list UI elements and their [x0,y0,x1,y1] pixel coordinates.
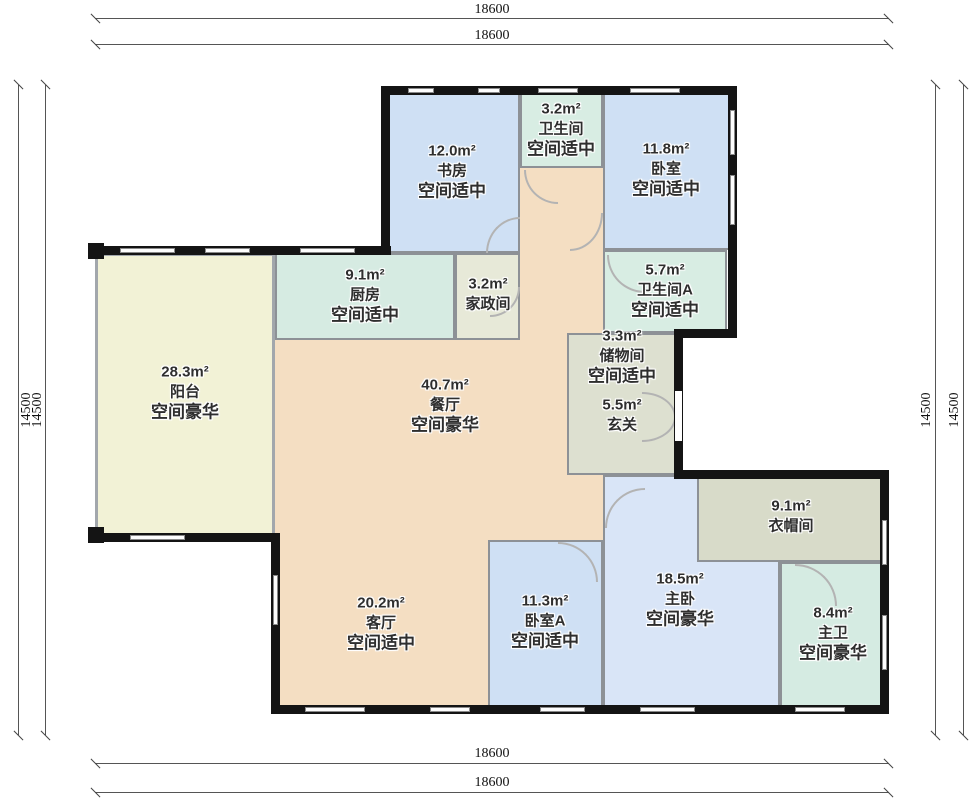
window-segment [300,248,355,253]
room-name: 卧室 [632,159,700,179]
dimension-label-right-1: 14500 [919,393,935,428]
room-name: 阳台 [151,382,219,402]
dimension-line-bottom-2 [95,792,889,793]
label-bedroom: 11.8m² 卧室 空间适中 [632,139,700,200]
room-name: 厨房 [331,285,399,305]
dimension-line-top-2 [95,44,889,45]
window-segment [730,175,735,225]
label-master-bedroom: 18.5m² 主卧 空间豪华 [646,569,714,630]
window-segment [540,707,585,712]
window-segment [305,707,365,712]
window-segment [205,248,250,253]
dimension-line-bottom-1 [95,763,889,764]
dimension-label-bottom-1: 18600 [475,746,510,762]
room-name: 主卧 [646,589,714,609]
label-cloakroom: 9.1m² 衣帽间 [768,497,813,536]
window-segment [430,707,470,712]
room-name: 卫生间 [527,119,595,139]
dimension-label-right-2: 14500 [947,393,963,428]
dimension-line-right-2 [963,85,964,735]
room-grade: 空间适中 [511,630,579,652]
room-grade: 空间豪华 [411,414,479,436]
room-name: 卫生间A [631,280,699,300]
window-segment [882,520,887,565]
room-area: 3.2m² [527,99,595,119]
label-foyer: 5.5m² 玄关 [602,396,641,435]
room-grade: 空间豪华 [151,401,219,423]
room-name: 客厅 [347,613,415,633]
window-segment [795,707,845,712]
dimension-line-right-1 [935,85,936,735]
window-segment [478,88,500,93]
room-grade: 空间适中 [588,365,656,387]
room-area: 20.2m² [347,593,415,613]
window-segment [630,88,680,93]
room-name: 卧室A [511,611,579,631]
dimension-label-top-1: 18600 [475,2,510,18]
corridor-area [520,168,603,340]
label-dining: 40.7m² 餐厅 空间豪华 [411,375,479,436]
room-area: 3.2m² [465,275,510,295]
wall-right-lower [880,470,889,714]
wall-step [674,329,737,338]
label-housekeeping: 3.2m² 家政间 [465,275,510,314]
room-area: 9.1m² [331,265,399,285]
room-area: 28.3m² [151,362,219,382]
dining-area-lower [275,475,603,540]
room-area: 40.7m² [411,375,479,395]
label-storage: 3.3m² 储物间 空间适中 [588,326,656,387]
wall-cloakroom-top [674,470,889,479]
room-name: 衣帽间 [768,516,813,536]
room-grade: 空间适中 [527,138,595,160]
dimension-line-top-1 [95,18,889,19]
room-area: 11.3m² [511,591,579,611]
room-area: 5.7m² [631,260,699,280]
room-grade: 空间适中 [331,304,399,326]
window-segment [273,575,278,625]
window-segment [538,88,578,93]
room-area: 9.1m² [768,497,813,517]
window-segment [120,248,175,253]
room-area: 11.8m² [632,139,700,159]
room-name: 主卫 [799,623,867,643]
window-segment [882,615,887,670]
dimension-label-top-2: 18600 [475,28,510,44]
room-name: 玄关 [602,415,641,435]
floor-plan: 18600 18600 18600 18600 14500 14500 1450… [0,0,973,800]
label-balcony: 28.3m² 阳台 空间豪华 [151,362,219,423]
wall-study-left [381,86,390,255]
room-name: 家政间 [465,294,510,314]
label-living: 20.2m² 客厅 空间适中 [347,593,415,654]
balcony-corner-block [88,527,104,543]
label-study: 12.0m² 书房 空间适中 [418,141,486,202]
room-grade: 空间适中 [631,299,699,321]
room-area: 8.4m² [799,603,867,623]
room-name: 餐厅 [411,395,479,415]
room-grade: 空间适中 [418,180,486,202]
label-bedroom-a: 11.3m² 卧室A 空间适中 [511,591,579,652]
room-name: 储物间 [588,346,656,366]
entrance-opening-gap [675,391,682,441]
window-segment [408,88,434,93]
room-grade: 空间适中 [632,178,700,200]
room-area: 5.5m² [602,396,641,416]
label-kitchen: 9.1m² 厨房 空间适中 [331,265,399,326]
room-grade: 空间适中 [347,632,415,654]
room-area: 3.3m² [588,326,656,346]
dimension-label-left-2: 14500 [30,393,46,428]
window-segment [730,110,735,155]
room-grade: 空间豪华 [646,608,714,630]
room-grade: 空间豪华 [799,642,867,664]
dimension-label-bottom-2: 18600 [475,775,510,791]
window-segment [130,535,185,540]
label-bathroom-a: 5.7m² 卫生间A 空间适中 [631,260,699,321]
wall-balcony-bottom [91,533,279,542]
room-name: 书房 [418,161,486,181]
label-bathroom-top: 3.2m² 卫生间 空间适中 [527,99,595,160]
balcony-corner-block [88,243,104,259]
room-area: 18.5m² [646,569,714,589]
window-segment [640,707,695,712]
label-master-bathroom: 8.4m² 主卫 空间豪华 [799,603,867,664]
room-area: 12.0m² [418,141,486,161]
